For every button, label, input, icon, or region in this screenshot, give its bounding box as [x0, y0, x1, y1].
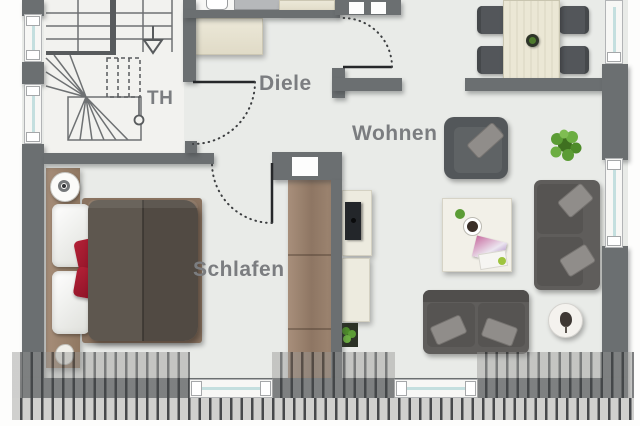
- lowboard-cabinet: [342, 258, 370, 322]
- room-label-schlafen: Schlafen: [193, 258, 285, 282]
- window-icon: [394, 379, 478, 398]
- wall: [331, 180, 342, 378]
- staircase-icon: [44, 0, 184, 154]
- wall: [465, 78, 603, 91]
- leaf-accent: [498, 257, 506, 265]
- roof-hatching-icon: [12, 352, 190, 398]
- tv-icon: [345, 202, 361, 240]
- shaft-icon: [292, 157, 318, 176]
- stair-direction-arrow-icon: [144, 26, 162, 53]
- nightstand-lamp-icon: [50, 172, 80, 202]
- room-label-th: TH: [147, 88, 173, 110]
- shaft-icon: [371, 2, 386, 14]
- cup-icon: [463, 217, 482, 236]
- flower-icon: [455, 209, 465, 219]
- window-icon: [605, 0, 623, 64]
- window-icon: [24, 84, 42, 144]
- armchair-icon: [444, 117, 508, 179]
- wall: [44, 153, 214, 164]
- window-icon: [24, 14, 42, 62]
- sofa-icon: [423, 290, 529, 354]
- sofa-icon: [534, 180, 600, 290]
- roof-hatching-icon: [272, 352, 395, 398]
- wardrobe-icon: [192, 18, 263, 55]
- roof-hatching-icon: [12, 398, 634, 420]
- duvet: [88, 200, 198, 341]
- shaft-icon: [349, 2, 364, 14]
- room-label-diele: Diele: [259, 72, 312, 96]
- table-plant-leaf: [529, 37, 536, 44]
- wall: [22, 62, 44, 84]
- coffee-table-icon: [442, 198, 512, 272]
- washbasin-icon: [206, 0, 228, 10]
- potted-plant-icon: [546, 126, 584, 164]
- wall: [272, 152, 342, 180]
- window-icon: [189, 379, 273, 398]
- roof-hatching-icon: [477, 352, 634, 398]
- shower-icon: [234, 0, 280, 10]
- wall-stub: [185, 141, 197, 153]
- wall-pier: [602, 64, 628, 160]
- side-table-lamp-icon: [548, 303, 583, 338]
- window-icon: [605, 158, 623, 248]
- wall: [183, 10, 340, 18]
- dining-chair-icon: [559, 6, 589, 34]
- wall: [332, 78, 402, 91]
- dining-chair-icon: [559, 46, 589, 74]
- room-label-wohnen: Wohnen: [352, 122, 437, 146]
- wall: [335, 0, 401, 15]
- small-plant-icon: [339, 322, 359, 348]
- floor-plan: TH Diele Wohnen Schlafen: [0, 0, 640, 426]
- tv-lowboard-icon: [342, 190, 372, 256]
